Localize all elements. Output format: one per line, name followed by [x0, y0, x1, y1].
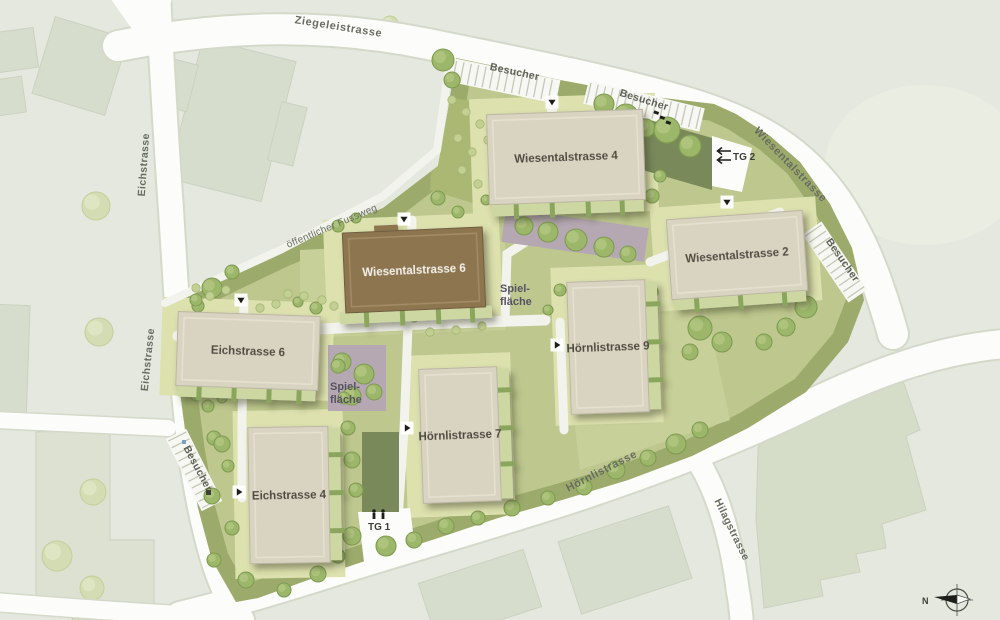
- shrub-icon: [426, 328, 434, 336]
- tree-highlight: [226, 266, 234, 274]
- shrub-icon: [272, 300, 280, 308]
- tree-highlight: [621, 247, 630, 256]
- tree-highlight: [356, 366, 367, 377]
- tree-highlight: [472, 512, 480, 520]
- tree-highlight: [434, 51, 446, 63]
- tree-highlight: [453, 207, 460, 214]
- building-hoernlistrasse-9[interactable]: Hörnlistrasse 9: [564, 279, 664, 414]
- tg1-ramp: [362, 432, 399, 512]
- tree-highlight: [345, 453, 354, 462]
- tree-highlight: [378, 538, 389, 549]
- shrub-icon: [330, 302, 338, 310]
- shrub-icon: [318, 296, 326, 304]
- tree-highlight: [439, 519, 448, 528]
- site-plan-canvas: Wiesentalstrasse 4 Wiesentalstrasse 2 Wi…: [0, 0, 1000, 620]
- tree-highlight: [445, 73, 454, 82]
- tree-highlight: [350, 484, 358, 492]
- tree-highlight: [203, 401, 210, 408]
- tree-highlight: [567, 231, 579, 243]
- entrance-arrow-icon: [546, 96, 559, 109]
- tree-highlight: [239, 573, 248, 582]
- tree-highlight: [215, 437, 224, 446]
- shrub-icon: [300, 292, 308, 300]
- shrub-icon: [474, 180, 482, 188]
- shrub-icon: [256, 304, 264, 312]
- tree-highlight: [542, 492, 550, 500]
- tree-highlight: [757, 335, 766, 344]
- tree-highlight: [544, 306, 550, 312]
- tree-highlight: [505, 501, 514, 510]
- building-eichstrasse-6[interactable]: Eichstrasse 6: [175, 312, 320, 405]
- tree-highlight: [683, 345, 692, 354]
- shrub-icon: [192, 284, 200, 292]
- entrance-arrow-icon: [551, 339, 564, 352]
- tree-highlight: [681, 137, 693, 149]
- tree-highlight: [294, 298, 300, 304]
- tree-highlight: [641, 451, 650, 460]
- entrance-arrow-icon: [398, 213, 411, 226]
- tree-highlight: [45, 544, 62, 561]
- compass-north-label: N: [922, 596, 929, 606]
- entrance-arrow-icon: [233, 486, 246, 499]
- shrub-icon: [448, 96, 456, 104]
- building-wiesentalstrasse-6[interactable]: Wiesentalstrasse 6: [336, 221, 492, 329]
- tree-highlight: [332, 360, 340, 368]
- tree-highlight: [540, 224, 551, 235]
- shrub-icon: [454, 134, 462, 142]
- tree-highlight: [342, 422, 350, 430]
- building-hoernlistrasse-7[interactable]: Hörnlistrasse 7: [416, 366, 516, 503]
- tree-highlight: [226, 522, 234, 530]
- entrance-arrow-icon: [235, 294, 248, 307]
- shrub-icon: [458, 166, 466, 174]
- tree-highlight: [596, 96, 607, 107]
- road-west-stub: [0, 420, 168, 428]
- tree-highlight: [407, 533, 416, 542]
- building-wiesentalstrasse-4[interactable]: Wiesentalstrasse 4: [486, 109, 646, 219]
- spielflaeche-label-west: Spiel- fläche: [330, 381, 362, 406]
- spielflaeche-label-center: Spiel- fläche: [500, 283, 532, 308]
- tree-highlight: [646, 190, 654, 198]
- building-wiesentalstrasse-2[interactable]: Wiesentalstrasse 2: [666, 210, 808, 313]
- tg1-label: TG 1: [368, 522, 391, 533]
- tree-highlight: [482, 196, 488, 202]
- tree-highlight: [204, 280, 215, 291]
- tree-highlight: [311, 303, 318, 310]
- svg-text:Spiel-: Spiel-: [500, 283, 530, 295]
- shrub-icon: [284, 290, 292, 298]
- tree-highlight: [208, 554, 216, 562]
- tree-highlight: [82, 481, 96, 495]
- tree-highlight: [87, 320, 102, 335]
- shrub-icon: [206, 292, 214, 300]
- tree-highlight: [367, 385, 376, 394]
- shrub-icon: [452, 326, 460, 334]
- tree-highlight: [596, 239, 607, 250]
- tree-highlight: [208, 432, 216, 440]
- hydrant-icon: [182, 440, 186, 444]
- svg-text:fläche: fläche: [330, 394, 362, 406]
- tree-highlight: [82, 578, 95, 591]
- shrub-icon: [476, 120, 484, 128]
- tree-highlight: [223, 461, 230, 468]
- svg-text:fläche: fläche: [500, 296, 532, 308]
- tree-highlight: [693, 423, 702, 432]
- shrub-icon: [478, 322, 486, 330]
- tree-highlight: [714, 334, 725, 345]
- building-label: Eichstrasse 4: [252, 489, 327, 502]
- tree-highlight: [311, 567, 320, 576]
- svg-text:Spiel-: Spiel-: [330, 381, 360, 393]
- site-plan: Wiesentalstrasse 4 Wiesentalstrasse 2 Wi…: [0, 0, 1000, 620]
- tg2-label: TG 2: [733, 152, 756, 163]
- tree-highlight: [655, 171, 662, 178]
- tree-highlight: [278, 584, 286, 592]
- tree-highlight: [555, 285, 562, 292]
- entrance-arrow-icon: [721, 196, 734, 209]
- tree-highlight: [345, 529, 355, 539]
- tree-highlight: [690, 318, 703, 331]
- tree-highlight: [668, 436, 679, 447]
- building-eichstrasse-4[interactable]: Eichstrasse 4: [248, 426, 345, 564]
- tree-highlight: [432, 192, 440, 200]
- tree-highlight: [84, 194, 99, 209]
- tree-highlight: [191, 295, 198, 302]
- entrance-arrow-icon: [401, 422, 414, 435]
- shrub-icon: [468, 148, 476, 156]
- shrub-icon: [462, 108, 470, 116]
- shrub-icon: [222, 286, 230, 294]
- tree-highlight: [517, 219, 527, 229]
- tree-highlight: [779, 320, 789, 330]
